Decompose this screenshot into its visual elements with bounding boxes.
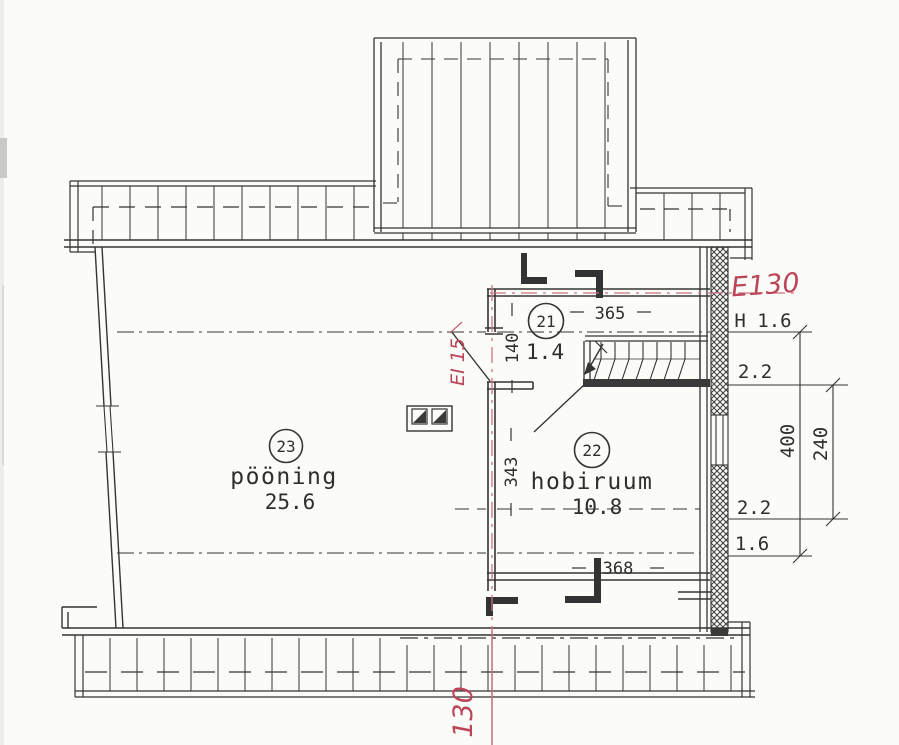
red-e130-label: E130 — [730, 268, 801, 304]
height-22-upper-label: 2.2 — [738, 361, 772, 383]
room23-name-label: pööning — [230, 464, 337, 490]
floor-plan-scan: 21 1.4 365 140 — [0, 0, 899, 745]
height-22-lower-label: 2.2 — [737, 497, 771, 519]
dim-365-label: 365 — [595, 304, 626, 324]
room21-area-label: 1.4 — [526, 340, 564, 364]
height-16-label: 1.6 — [735, 533, 769, 555]
scan-artifact — [0, 138, 7, 178]
height-h16-label: H 1.6 — [734, 310, 791, 332]
room21-number-label: 21 — [536, 312, 555, 331]
dim-343-label: 343 — [502, 457, 522, 488]
dim-400-label: 400 — [777, 424, 799, 458]
room23-area-label: 25.6 — [265, 490, 316, 514]
red-130-label: 130 — [448, 686, 479, 738]
dim-240-label: 240 — [810, 427, 832, 461]
stair-edge-wall — [583, 379, 710, 387]
room23-number-label: 23 — [276, 437, 295, 456]
hatched-wall-lower — [711, 465, 728, 632]
room22-number-label: 22 — [582, 441, 601, 460]
dim-368-label: 368 — [603, 559, 634, 579]
floor-plan-drawing: 21 1.4 365 140 — [0, 0, 899, 745]
room22-area-label: 10.8 — [572, 495, 623, 519]
dim-140-label: 140 — [503, 333, 523, 364]
hatched-wall-upper — [711, 247, 728, 415]
wall-cap — [711, 628, 728, 636]
red-ei15-label: EI 15 — [447, 338, 469, 386]
room22-name-label: hobiruum — [531, 469, 654, 495]
